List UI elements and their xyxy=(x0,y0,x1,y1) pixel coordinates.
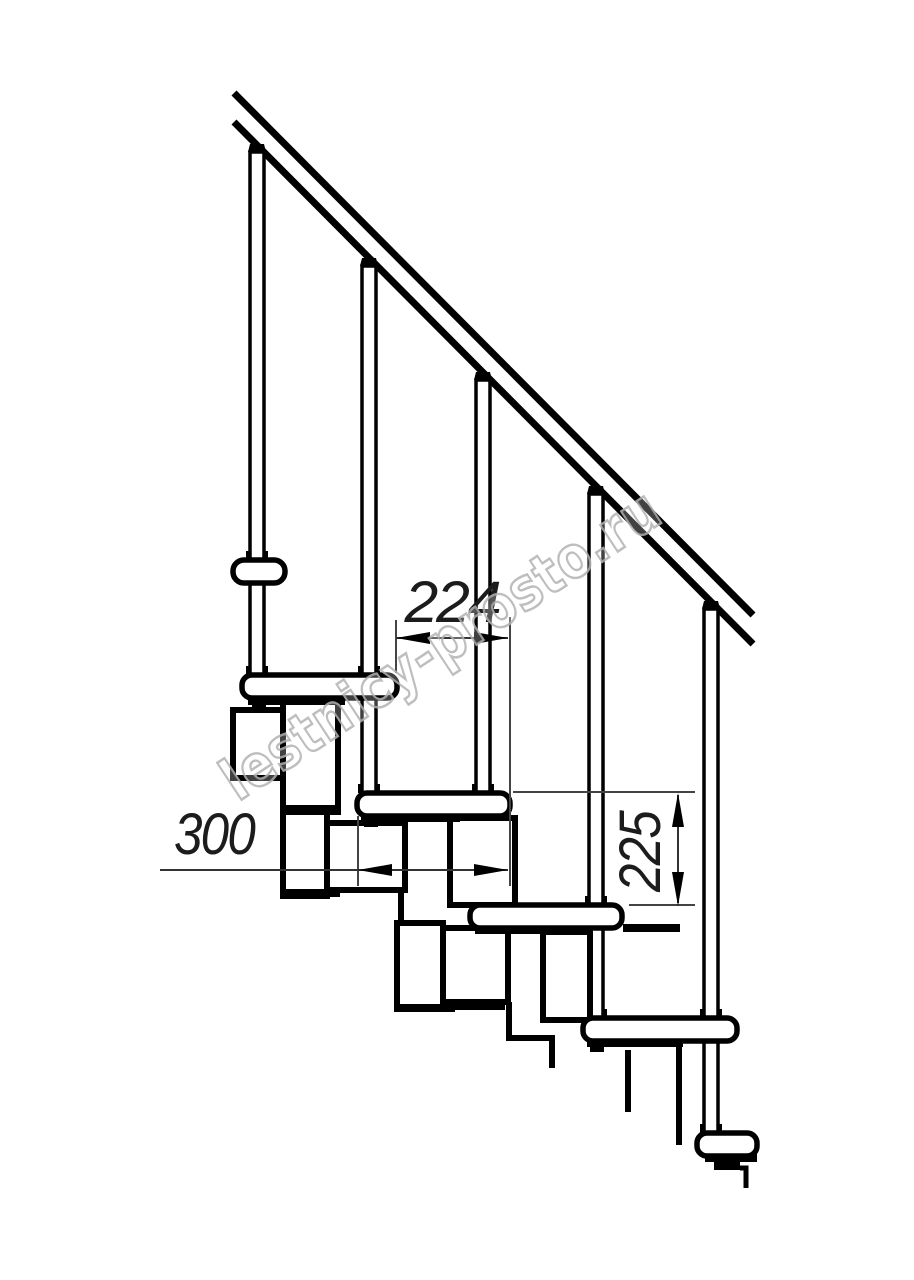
baluster-5 xyxy=(704,609,718,1148)
tread-2 xyxy=(357,793,510,816)
tread-4 xyxy=(583,1018,737,1041)
module-box xyxy=(443,928,508,1002)
tread-end-upper xyxy=(233,560,285,583)
tread-flange-tab xyxy=(252,705,266,711)
dimension-value-rise: 225 xyxy=(608,810,673,893)
drawing-canvas: 224 300 225 lestnicy-prosto.ru xyxy=(0,0,914,1280)
tread-3 xyxy=(470,905,622,928)
baluster-1 xyxy=(250,152,264,690)
arrow-down-icon xyxy=(672,872,684,906)
module-box xyxy=(543,932,590,1020)
module-band xyxy=(283,889,340,897)
handrail-top-line xyxy=(234,93,753,615)
module-band xyxy=(452,1002,505,1010)
handrail-bottom-line xyxy=(234,122,753,644)
tread-flange xyxy=(623,924,680,932)
arrow-up-icon xyxy=(672,793,684,827)
module-box xyxy=(283,812,327,896)
tread-flange xyxy=(475,927,590,934)
staircase-drawing: 224 300 225 lestnicy-prosto.ru xyxy=(0,0,914,1280)
tread-flange xyxy=(705,1154,757,1162)
tread-flange xyxy=(587,1040,683,1047)
module-hook xyxy=(740,1168,746,1188)
tread-flange-tab xyxy=(714,1162,740,1170)
module-box xyxy=(397,923,443,1008)
module-band xyxy=(394,1004,455,1012)
tread-flange xyxy=(361,815,460,822)
module-box xyxy=(450,818,515,905)
handrail xyxy=(234,93,753,644)
module-box xyxy=(327,823,405,890)
tread-flange-tab xyxy=(364,822,378,827)
module-band xyxy=(283,805,338,813)
tread-5 xyxy=(697,1133,757,1156)
tread-flange-tab xyxy=(590,1047,604,1052)
